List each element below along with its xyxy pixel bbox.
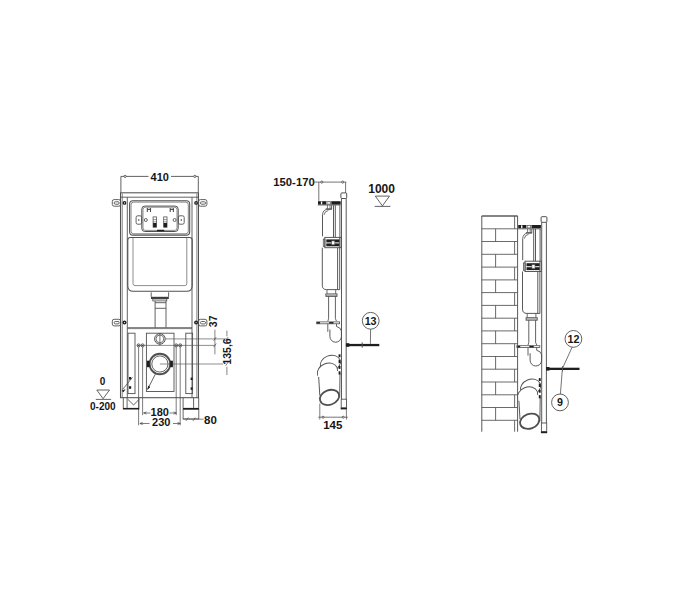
svg-text:13: 13 bbox=[365, 315, 377, 327]
svg-text:37: 37 bbox=[207, 315, 219, 327]
svg-text:80: 80 bbox=[204, 414, 217, 426]
svg-text:9: 9 bbox=[557, 396, 563, 408]
svg-text:410: 410 bbox=[151, 171, 169, 183]
svg-text:150-170: 150-170 bbox=[273, 176, 314, 188]
svg-text:0: 0 bbox=[100, 376, 106, 387]
svg-text:12: 12 bbox=[567, 333, 579, 345]
svg-text:0-200: 0-200 bbox=[90, 401, 116, 412]
svg-text:1000: 1000 bbox=[368, 182, 395, 196]
svg-text:135,6: 135,6 bbox=[221, 338, 233, 364]
svg-text:145: 145 bbox=[323, 419, 343, 431]
svg-text:230: 230 bbox=[152, 416, 170, 428]
